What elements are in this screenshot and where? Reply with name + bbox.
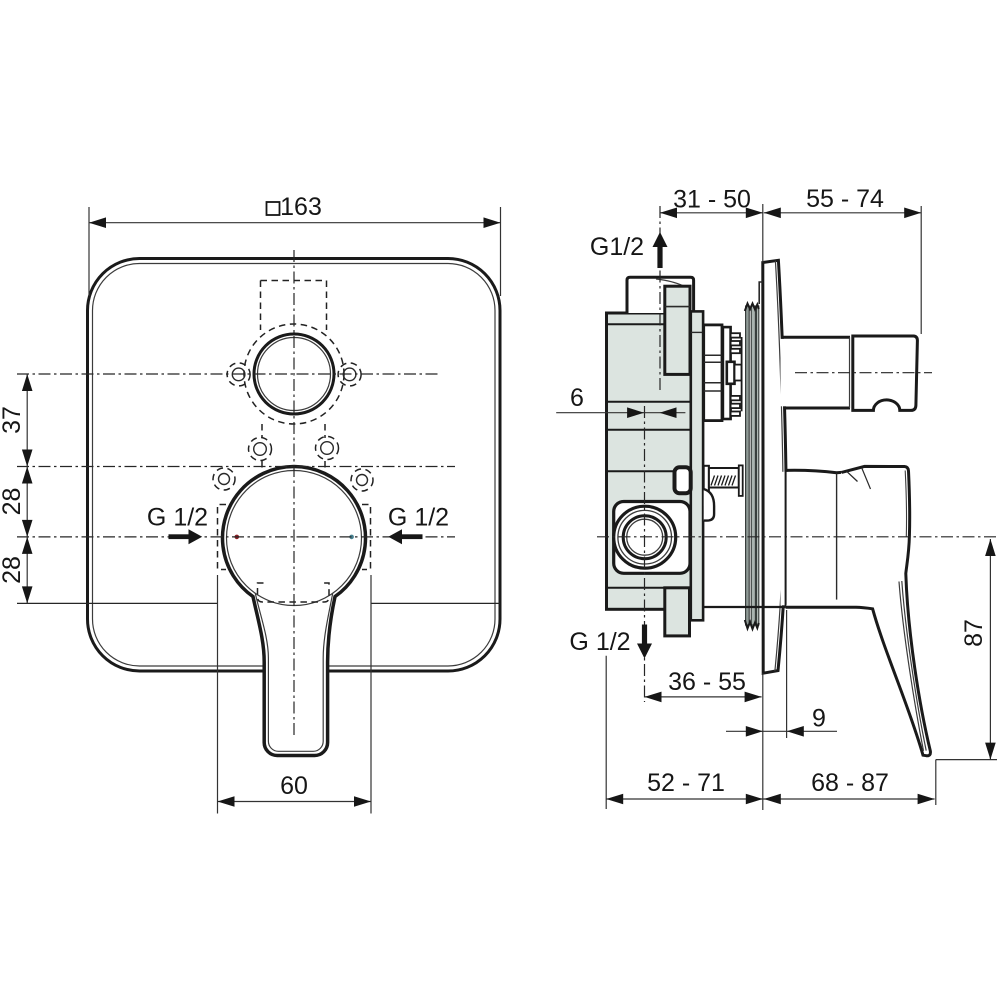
svg-text:28: 28: [0, 556, 26, 584]
svg-text:37: 37: [0, 406, 26, 434]
svg-text:6: 6: [570, 384, 584, 412]
svg-text:G 1/2: G 1/2: [569, 628, 630, 656]
svg-text:G 1/2: G 1/2: [147, 504, 208, 532]
svg-text:9: 9: [812, 705, 826, 733]
svg-text:87: 87: [960, 619, 988, 647]
svg-text:G 1/2: G 1/2: [388, 504, 449, 532]
svg-text:52 - 71: 52 - 71: [647, 769, 725, 797]
svg-text:28: 28: [0, 488, 26, 516]
svg-text:36 - 55: 36 - 55: [668, 668, 746, 696]
svg-text:68 - 87: 68 - 87: [811, 769, 889, 797]
svg-text:163: 163: [280, 193, 322, 221]
svg-text:G1/2: G1/2: [590, 233, 644, 261]
svg-text:55 - 74: 55 - 74: [806, 185, 884, 213]
svg-text:60: 60: [280, 772, 308, 800]
svg-text:31 - 50: 31 - 50: [673, 185, 751, 213]
